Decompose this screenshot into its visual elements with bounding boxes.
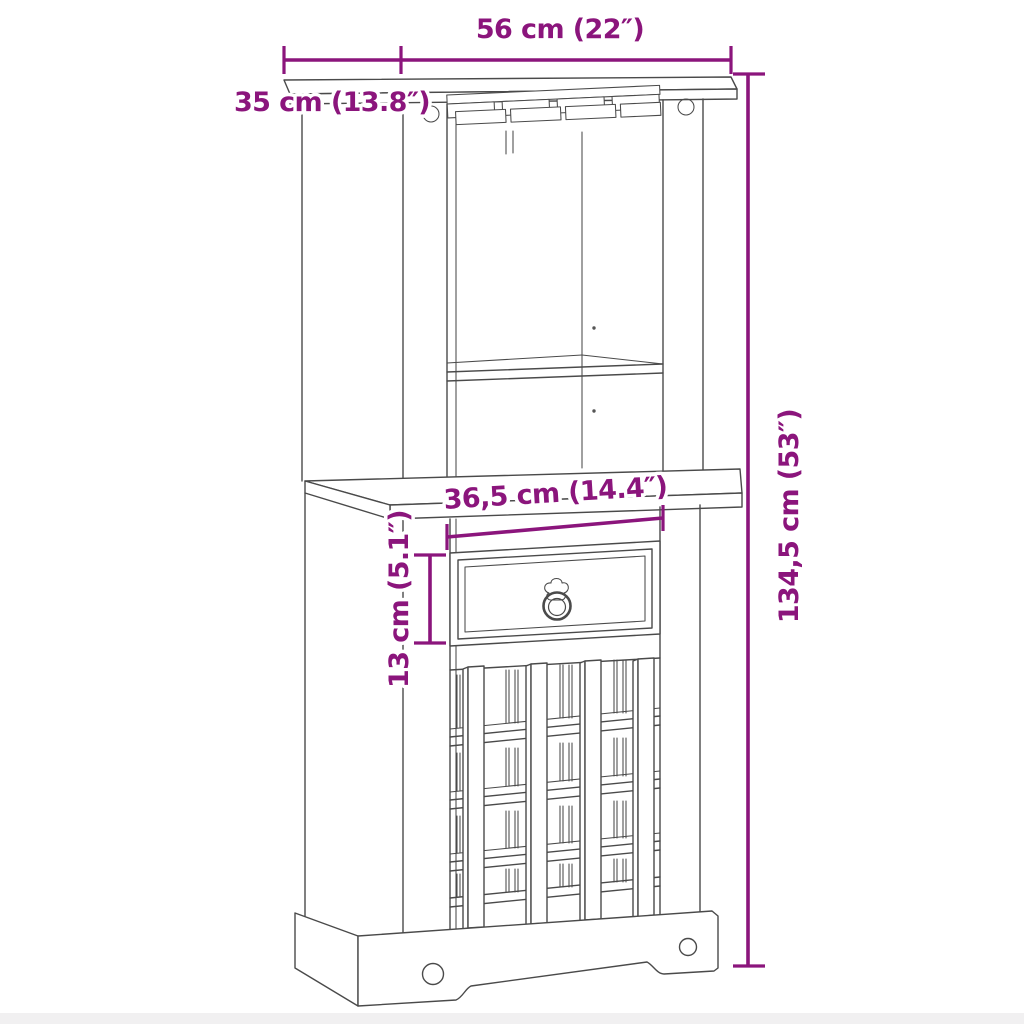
dim-top-depth: 35 cm (13.8″) [234, 87, 430, 118]
dimension-diagram: 56 cm (22″) 35 cm (13.8″) 36,5 cm (14.4″… [0, 0, 1024, 1024]
footer-strip [0, 1013, 1024, 1024]
drawer [450, 541, 660, 646]
dim-drawer-height-label: 13 cm (5.1″) [384, 510, 415, 688]
product-dimension-image: 56 cm (22″) 35 cm (13.8″) 36,5 cm (14.4″… [0, 0, 1024, 1024]
dim-total-height-label: 134,5 cm (53″) [774, 409, 805, 623]
dim-top-depth-label: 35 cm (13.8″) [234, 87, 430, 118]
shelf-pin-hole [592, 409, 595, 412]
dim-top-width-label: 56 cm (22″) [476, 14, 644, 45]
shelf-pin-hole [592, 326, 595, 329]
